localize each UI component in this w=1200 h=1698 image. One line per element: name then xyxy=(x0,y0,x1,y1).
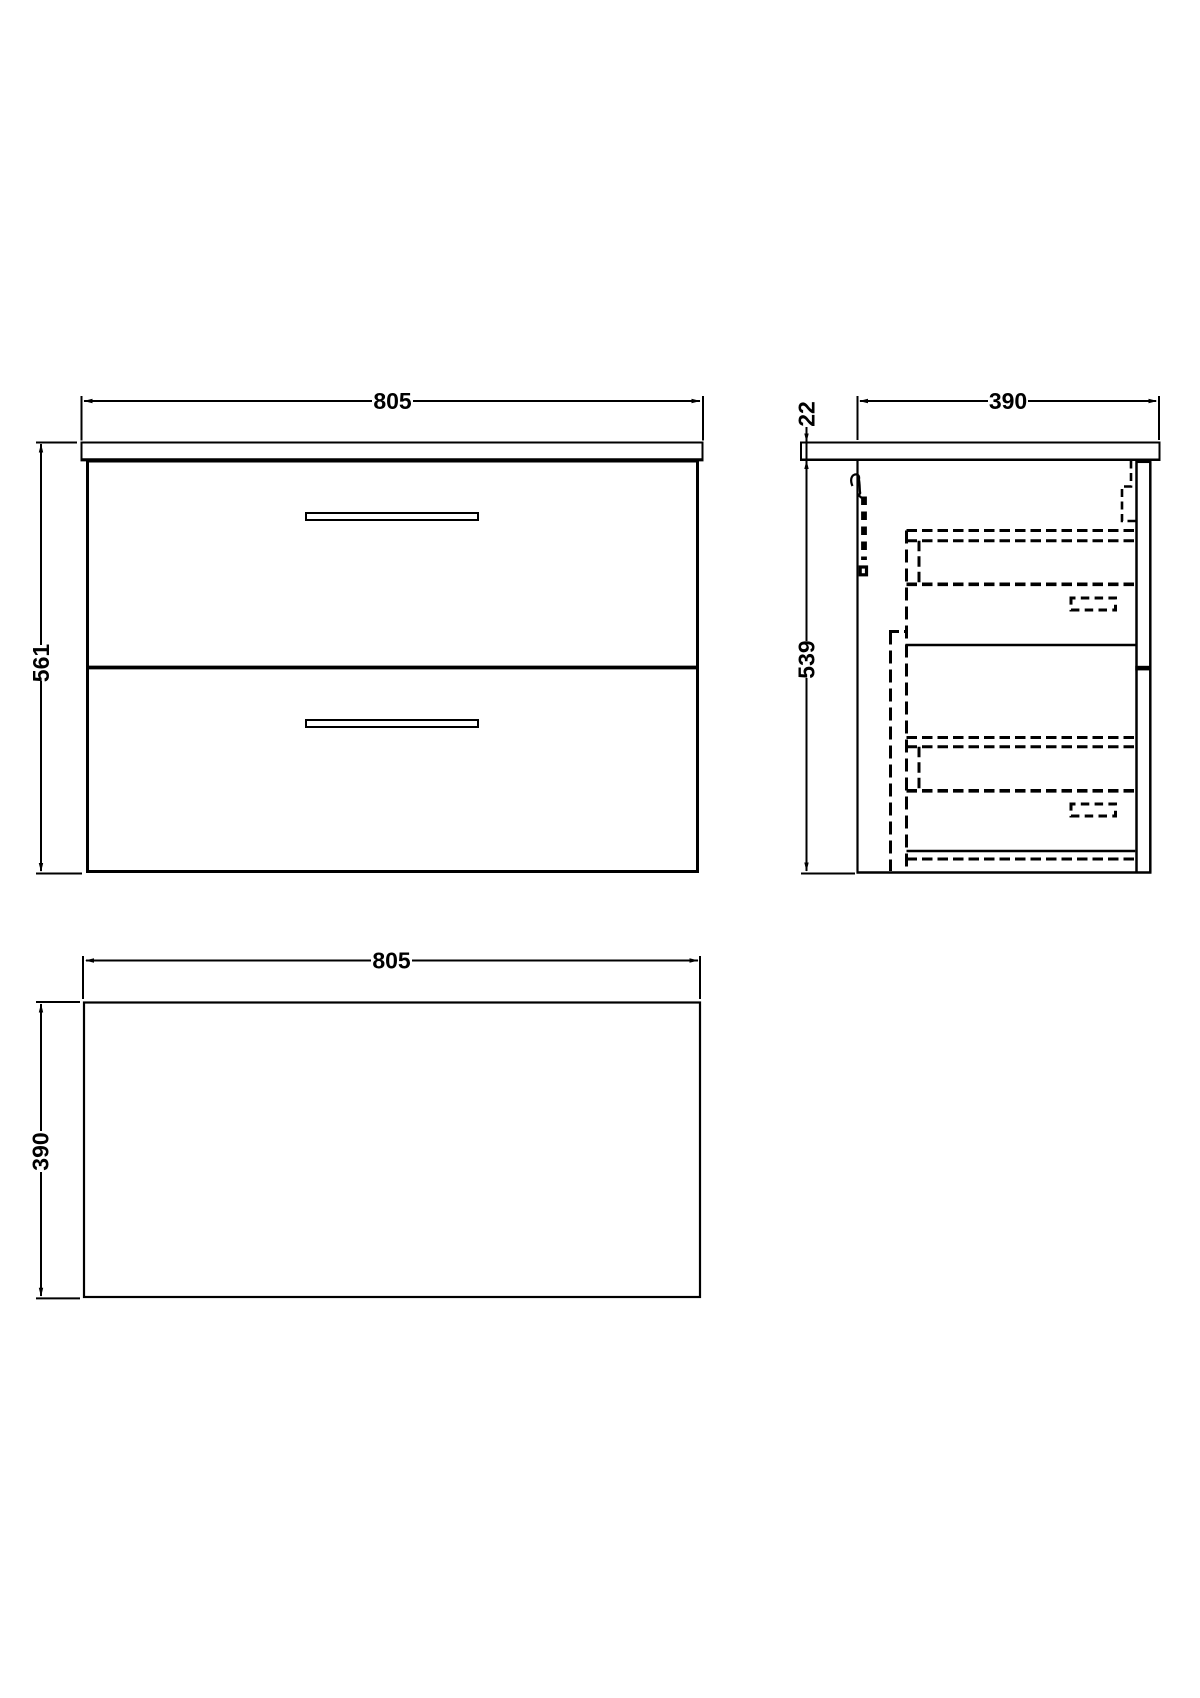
svg-text:390: 390 xyxy=(27,1132,53,1170)
svg-text:22: 22 xyxy=(794,401,820,427)
svg-text:805: 805 xyxy=(372,948,411,974)
svg-text:805: 805 xyxy=(373,388,412,414)
svg-text:539: 539 xyxy=(793,640,819,678)
svg-text:561: 561 xyxy=(28,644,54,683)
svg-text:390: 390 xyxy=(989,388,1027,414)
